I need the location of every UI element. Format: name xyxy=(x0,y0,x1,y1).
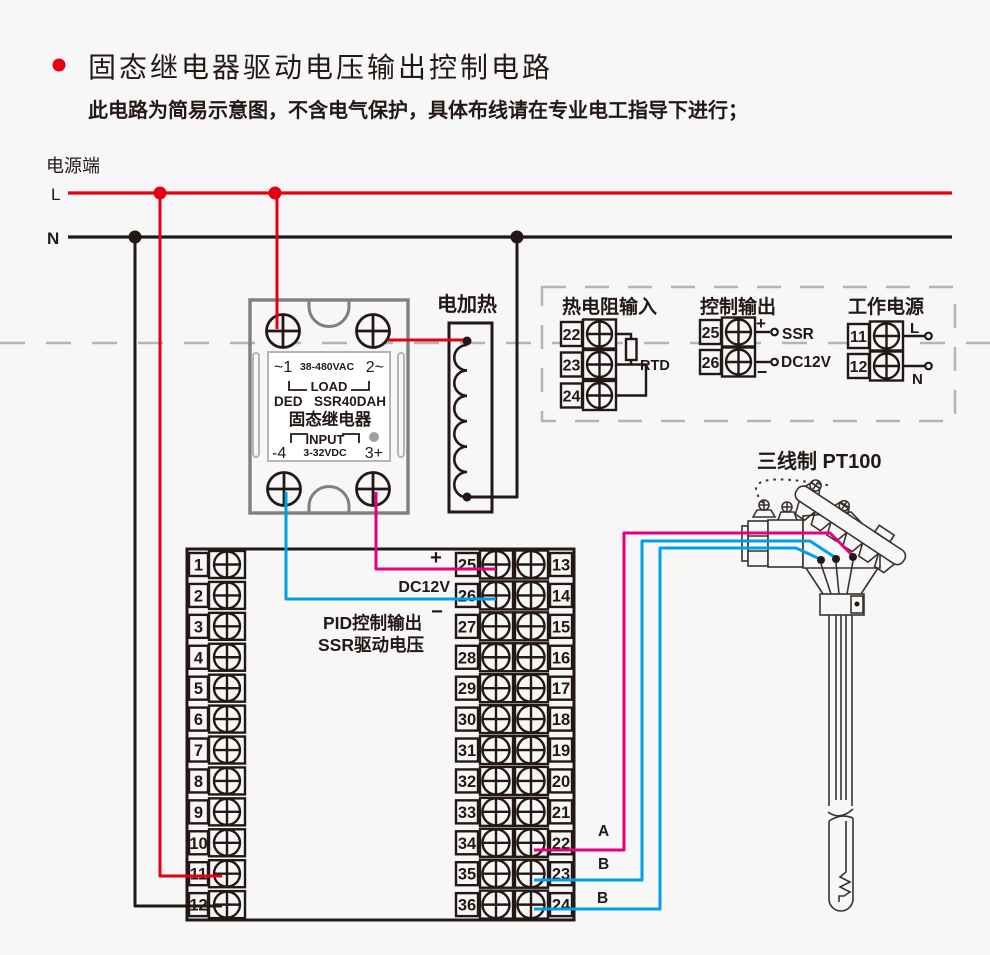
title-bullet-icon xyxy=(53,59,66,72)
terminal-number: 32 xyxy=(458,773,476,791)
terminal-number: 12 xyxy=(850,359,868,376)
ssr-load-label: LOAD xyxy=(311,379,348,394)
ssr-load-voltage: 38-480VAC xyxy=(300,361,355,373)
power-terminal-ring-n xyxy=(925,363,932,370)
terminal-number: 23 xyxy=(563,358,581,375)
terminal-number: 7 xyxy=(194,742,203,760)
sensor-hex-nut xyxy=(748,521,768,566)
terminal-number: 21 xyxy=(552,804,570,822)
terminal-number: 26 xyxy=(458,587,476,605)
ctrl-dc12v-label: DC12V xyxy=(781,354,832,371)
sensor-wire-b1-label: B xyxy=(598,856,609,873)
terminal-number: 8 xyxy=(194,773,203,791)
terminal-number: 17 xyxy=(552,680,570,698)
neutral-junction-dot xyxy=(511,231,524,244)
sensor-gland-screw-icon xyxy=(855,602,860,607)
terminal-number: 31 xyxy=(458,742,476,760)
sensor-terminal-dot xyxy=(832,555,840,563)
rtd-group-title: 热电阻输入 xyxy=(562,295,657,318)
terminal-number: 15 xyxy=(552,618,570,636)
terminal-number: 18 xyxy=(552,711,570,729)
wire-neutral-to-heater xyxy=(471,237,517,497)
block-plus-label: + xyxy=(430,547,442,569)
rtd-label: RTD xyxy=(640,358,670,374)
terminal-number: 36 xyxy=(458,897,476,915)
sensor-funnel xyxy=(806,568,878,594)
neutral-junction-dot xyxy=(129,231,142,244)
terminal-number: 1 xyxy=(194,557,203,575)
sensor-artwork xyxy=(742,474,915,911)
sensor-wire-a-label: A xyxy=(598,823,609,840)
sensor-neck xyxy=(768,520,803,567)
diagram-page: 22232425261112 热电阻输入 RTD 控制输出 + − SSR DC… xyxy=(0,0,990,955)
sensor-terminal-dot xyxy=(849,553,857,561)
terminal-number: 11 xyxy=(850,329,867,346)
terminal-number: 4 xyxy=(194,649,204,667)
page-subtitle: 此电路为简易示意图，不含电气保护，具体布线请在专业电工指导下进行； xyxy=(88,98,748,122)
terminal-number: 35 xyxy=(458,866,476,884)
rtd-resistor-symbol xyxy=(626,339,637,360)
live-junction-dot xyxy=(269,187,282,200)
power-l-label: L xyxy=(910,320,919,337)
mains-rails: 电源端 L N xyxy=(46,156,952,248)
mains-label: 电源端 xyxy=(46,156,100,176)
power-group-title: 工作电源 xyxy=(848,295,924,318)
heater: 电加热 xyxy=(437,293,497,512)
power-n-label: N xyxy=(912,371,923,388)
ssr-input-minus: -4 xyxy=(272,445,286,462)
terminal-number: 22 xyxy=(563,327,581,344)
terminal-number: 14 xyxy=(552,587,571,605)
terminal-number: 5 xyxy=(194,680,203,698)
terminal-number: 25 xyxy=(702,325,720,342)
heater-coil-icon xyxy=(454,345,467,497)
heater-bottom-node xyxy=(463,493,472,502)
ssr-name: 固态继电器 xyxy=(289,409,372,429)
heater-label: 电加热 xyxy=(437,293,497,316)
pid-output-label-line1: PID控制输出 xyxy=(323,613,422,633)
terminal-number: 24 xyxy=(563,389,581,406)
wiring-diagram: 22232425261112 热电阻输入 RTD 控制输出 + − SSR DC… xyxy=(0,0,990,955)
sensor-wire-b2-label: B xyxy=(597,890,608,907)
terminal-number: 13 xyxy=(552,557,570,575)
sensor-neck-washer xyxy=(778,512,797,520)
block-dc12v-label: DC12V xyxy=(398,579,450,596)
pt100-sensor: 三线制 PT100 xyxy=(742,449,915,911)
terminal-number: 34 xyxy=(458,835,477,853)
terminal-number: 2 xyxy=(194,587,203,605)
power-terminal-ring-l xyxy=(925,333,932,340)
ssr-model: SSR40DAH xyxy=(314,394,386,409)
terminal-number: 25 xyxy=(458,557,476,575)
ssr-top-notch xyxy=(309,302,349,327)
ssr-terminal2-label: 2~ xyxy=(366,359,384,376)
terminal-number: 29 xyxy=(458,680,476,698)
ssr-bottom-notch xyxy=(309,487,349,512)
sensor-terminal-dot xyxy=(817,556,825,564)
ssr-input-voltage: 3-32VDC xyxy=(303,447,347,459)
ctrl-terminal-ring-dc12v xyxy=(771,359,778,366)
sensor-stem-upper xyxy=(829,615,852,806)
live-junction-dot xyxy=(154,187,167,200)
ctrl-ssr-label: SSR xyxy=(782,326,814,343)
sensor-stem-break xyxy=(828,809,853,816)
ssr-right-slot xyxy=(398,353,404,457)
ssr-terminal1-label: ~1 xyxy=(274,359,292,376)
terminal-number: 3 xyxy=(194,618,203,636)
page-title: 固态继电器驱动电压输出控制电路 xyxy=(88,52,553,83)
terminal-number: 10 xyxy=(189,835,207,853)
terminal-number: 24 xyxy=(552,897,571,915)
terminal-number: 19 xyxy=(552,742,570,760)
ssr-brand: DED xyxy=(274,394,303,409)
live-label: L xyxy=(51,185,60,204)
sensor-element-zigzag xyxy=(839,821,850,902)
wire-b-terminal-24-to-sensor xyxy=(534,548,820,909)
terminal-number: 20 xyxy=(552,773,570,791)
neutral-label: N xyxy=(47,229,59,248)
terminal-number: 30 xyxy=(458,711,476,729)
ssr-module: ~1 38-480VAC 2~ LOAD DED SSR40DAH 固态继电器 … xyxy=(250,300,408,513)
sensor-label: 三线制 PT100 xyxy=(757,449,881,473)
terminal-number: 33 xyxy=(458,804,476,822)
terminal-number: 26 xyxy=(702,355,720,372)
ssr-left-slot xyxy=(253,353,259,457)
io-terminal-rows: 22232425261112 xyxy=(561,318,903,411)
wire-a-terminal-22-to-sensor xyxy=(534,533,853,850)
block-minus-label: − xyxy=(431,601,443,623)
ctrl-terminal-ring-ssr xyxy=(771,329,778,336)
ssr-led-indicator-icon xyxy=(369,432,379,442)
ssr-input-label: INPUT xyxy=(306,432,345,447)
terminal-number: 6 xyxy=(194,711,203,729)
sensor-chain-washer xyxy=(753,510,775,517)
ctrl-plus-label: + xyxy=(756,314,766,333)
wire-b-terminal-23-to-sensor xyxy=(534,541,836,880)
terminal-number: 16 xyxy=(552,649,570,667)
terminal-number: 27 xyxy=(458,618,476,636)
ssr-input-plus: 3+ xyxy=(365,445,383,462)
sensor-hex-nut-end xyxy=(742,526,748,561)
main-terminal-block: 1251322614327154281652917630187311983220… xyxy=(187,547,609,920)
terminal-number: 9 xyxy=(194,804,203,822)
terminal-number: 28 xyxy=(458,649,476,667)
heater-top-node xyxy=(463,337,472,346)
pid-output-label-line2: SSR驱动电压 xyxy=(318,635,424,655)
ctrl-minus-label: − xyxy=(757,362,768,382)
